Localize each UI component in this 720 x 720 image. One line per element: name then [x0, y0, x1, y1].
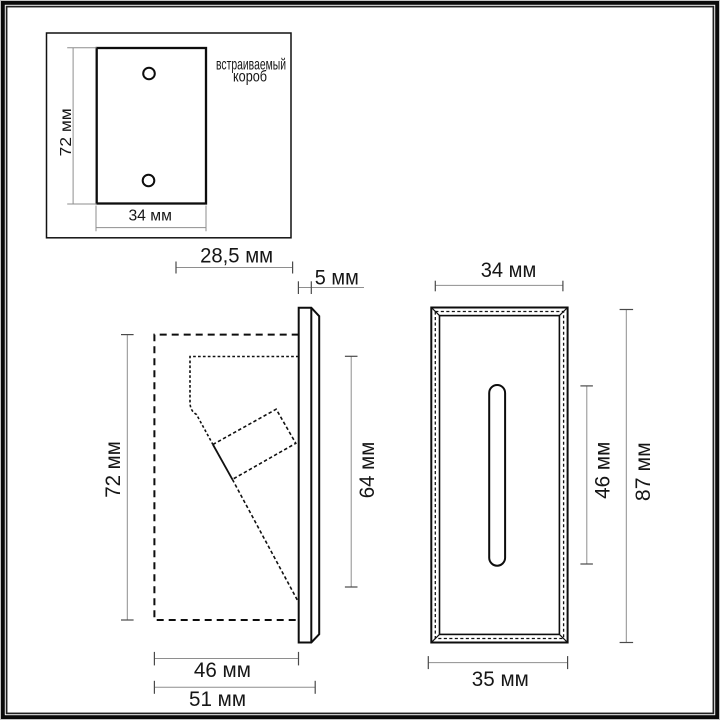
svg-text:64 мм: 64 мм	[356, 442, 379, 499]
svg-text:46 мм: 46 мм	[592, 442, 615, 499]
svg-text:87 мм: 87 мм	[632, 442, 655, 501]
svg-text:72 мм: 72 мм	[102, 441, 125, 498]
svg-text:72 мм: 72 мм	[58, 108, 75, 156]
svg-text:34 мм: 34 мм	[128, 207, 172, 224]
svg-text:28,5 мм: 28,5 мм	[200, 245, 273, 268]
svg-text:5 мм: 5 мм	[315, 266, 359, 289]
svg-text:короб: короб	[233, 69, 267, 86]
svg-text:46 мм: 46 мм	[194, 659, 251, 682]
svg-text:35 мм: 35 мм	[472, 668, 529, 691]
svg-text:34 мм: 34 мм	[481, 259, 537, 282]
svg-text:51 мм: 51 мм	[189, 688, 246, 711]
